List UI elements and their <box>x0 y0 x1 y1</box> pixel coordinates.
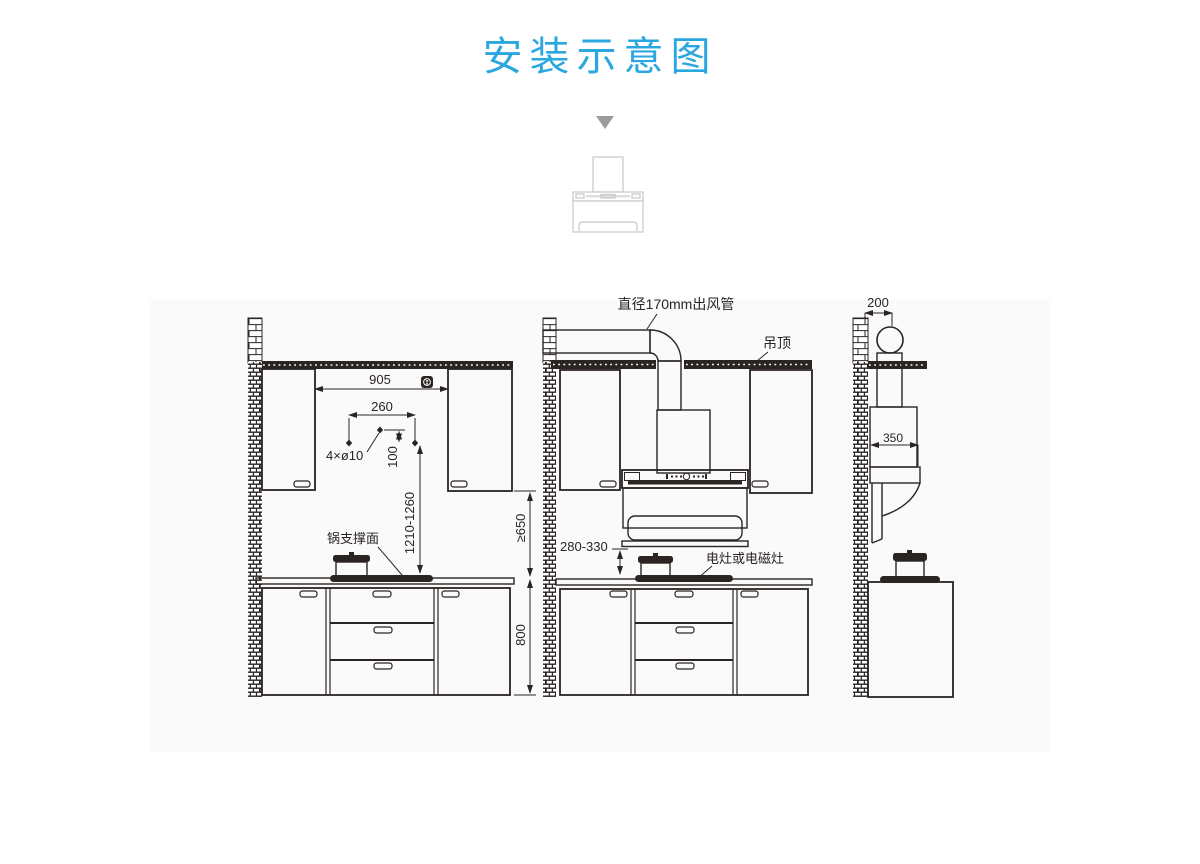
power-outlet-icon <box>421 376 433 388</box>
hood-body <box>623 488 747 528</box>
ceiling <box>262 361 513 369</box>
upper-cabinet-left <box>262 369 315 490</box>
product-sketch <box>573 157 643 232</box>
dimension-350 <box>871 445 918 466</box>
leader-line <box>367 433 379 452</box>
range-hood <box>622 410 748 547</box>
hood-chimney <box>657 410 710 473</box>
leader-line <box>378 547 402 575</box>
brick-wall <box>543 318 556 697</box>
leader-line <box>647 314 657 329</box>
cabinet-handle <box>752 481 768 487</box>
cabinet-handle <box>610 591 627 597</box>
base-cabinet <box>560 589 808 695</box>
pot-surface-label: 锅支撑面 <box>327 531 379 546</box>
installed-view <box>543 314 812 697</box>
dim-260-label: 260 <box>352 400 412 414</box>
range-hood-profile <box>870 407 920 543</box>
side-view <box>853 313 953 697</box>
drawer-handle <box>675 591 693 597</box>
cabinet-handle <box>300 591 317 597</box>
mounting-holes <box>346 415 418 452</box>
dim-100-label: 100 <box>386 437 400 477</box>
dimension-200 <box>865 313 892 326</box>
stove-label: 电灶或电磁灶 <box>706 551 784 566</box>
cabinet-handle <box>600 481 616 487</box>
holes-label: 4×ø10 <box>326 449 363 463</box>
dim-650-label: ≥650 <box>514 498 528 558</box>
ceiling-label: 吊顶 <box>763 336 791 351</box>
brick-wall <box>248 318 262 697</box>
base-cabinet <box>262 588 510 695</box>
dim-350-label: 350 <box>868 431 918 445</box>
leader-line <box>757 352 768 361</box>
cabinet-handle <box>442 591 459 597</box>
pot <box>893 550 927 577</box>
cabinet-handle <box>294 481 310 487</box>
dimension-280-330 <box>612 549 628 574</box>
technical-drawing <box>0 0 1200 864</box>
drawer-handle <box>676 627 694 633</box>
dim-800-label: 800 <box>514 605 528 665</box>
control-panel-icons <box>666 473 707 479</box>
dim-200-label: 200 <box>853 296 903 310</box>
drawer-handle <box>676 663 694 669</box>
dim-1210-1260-label: 1210-1260 <box>403 483 417 563</box>
cabinet-handle <box>451 481 467 487</box>
cabinet-handle <box>741 591 758 597</box>
dim-905-label: 905 <box>350 373 410 387</box>
installation-diagram-page: 安装示意图 <box>0 0 1200 864</box>
drawer-handle <box>374 627 392 633</box>
upper-cabinet-right <box>750 370 812 493</box>
pot <box>638 553 673 577</box>
pot <box>333 552 370 577</box>
drawer-handle <box>374 663 392 669</box>
base-cabinet <box>868 582 953 697</box>
brick-wall <box>853 318 868 697</box>
dim-280-330-label: 280-330 <box>560 540 608 554</box>
duct-label: 直径170mm出风管 <box>596 297 756 312</box>
drawer-handle <box>373 591 391 597</box>
upper-cabinet-right <box>448 369 512 491</box>
hole-marker <box>377 427 383 434</box>
hole-marker <box>346 440 352 447</box>
hole-marker <box>412 440 418 447</box>
upper-cabinet-left <box>560 370 620 490</box>
